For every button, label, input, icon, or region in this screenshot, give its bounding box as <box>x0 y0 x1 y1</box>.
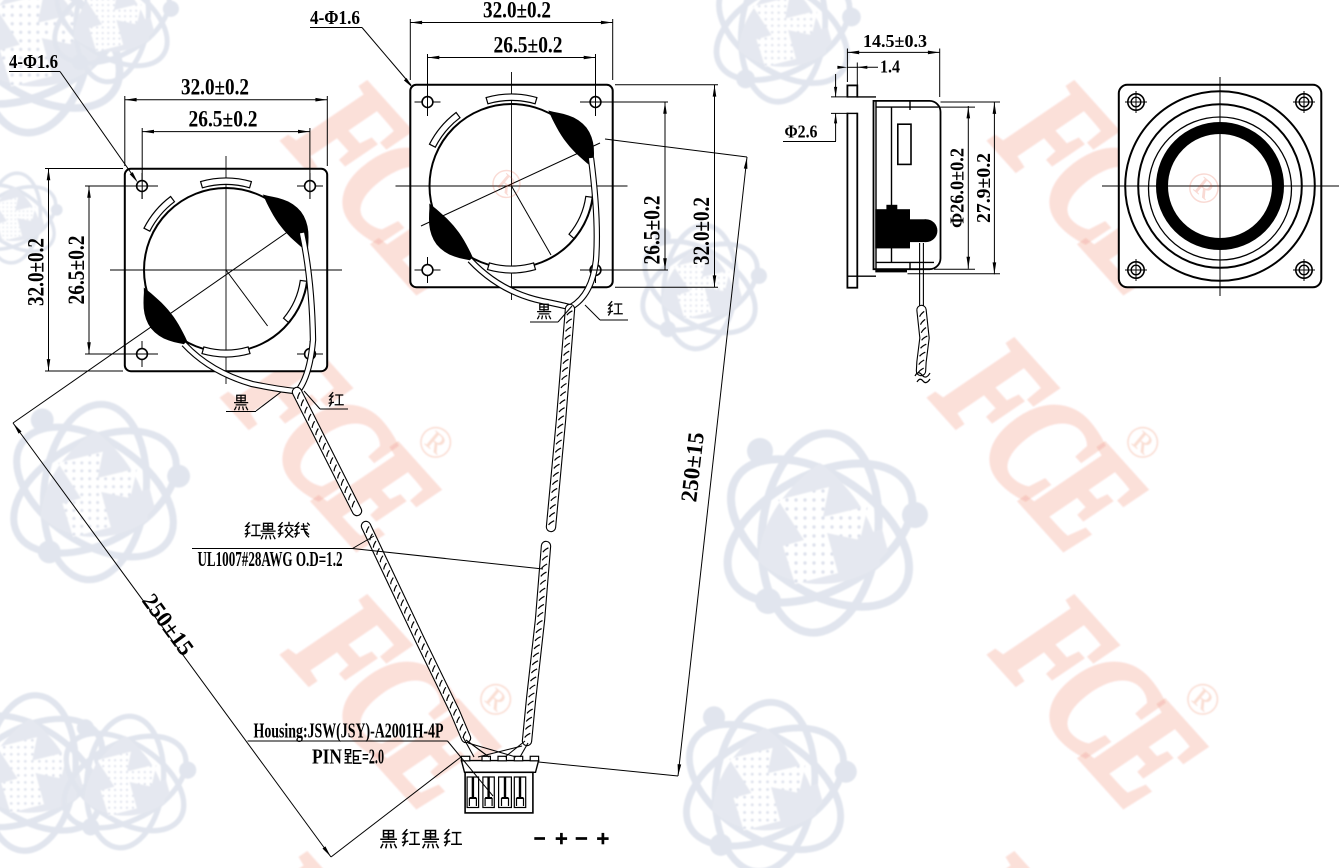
svg-text:=2.0: =2.0 <box>362 745 384 769</box>
svg-text:Housing:JSW(JSY)-A2001H-4P: Housing:JSW(JSY)-A2001H-4P <box>254 719 444 743</box>
svg-text:PIN: PIN <box>312 745 342 769</box>
svg-text:UL1007#28AWG O.D=1.2: UL1007#28AWG O.D=1.2 <box>198 547 343 571</box>
svg-text:4-Φ1.6: 4-Φ1.6 <box>310 7 360 29</box>
svg-text:26.5±0.2: 26.5±0.2 <box>64 236 89 305</box>
svg-text:32.0±0.2: 32.0±0.2 <box>24 238 49 306</box>
svg-text:26.5±0.2: 26.5±0.2 <box>640 196 665 265</box>
svg-text:1.4: 1.4 <box>880 57 900 77</box>
svg-text:14.5±0.3: 14.5±0.3 <box>863 31 927 51</box>
svg-text:32.0±0.2: 32.0±0.2 <box>689 197 714 265</box>
svg-text:26.5±0.2: 26.5±0.2 <box>494 33 563 58</box>
svg-text:Φ26.0±0.2: Φ26.0±0.2 <box>947 148 969 228</box>
svg-text:27.9±0.2: 27.9±0.2 <box>973 153 995 223</box>
svg-text:32.0±0.2: 32.0±0.2 <box>181 75 249 100</box>
svg-text:26.5±0.2: 26.5±0.2 <box>189 107 258 132</box>
svg-text:4-Φ1.6: 4-Φ1.6 <box>9 51 58 73</box>
svg-text:32.0±0.2: 32.0±0.2 <box>483 0 551 23</box>
svg-text:Φ2.6: Φ2.6 <box>785 122 818 142</box>
